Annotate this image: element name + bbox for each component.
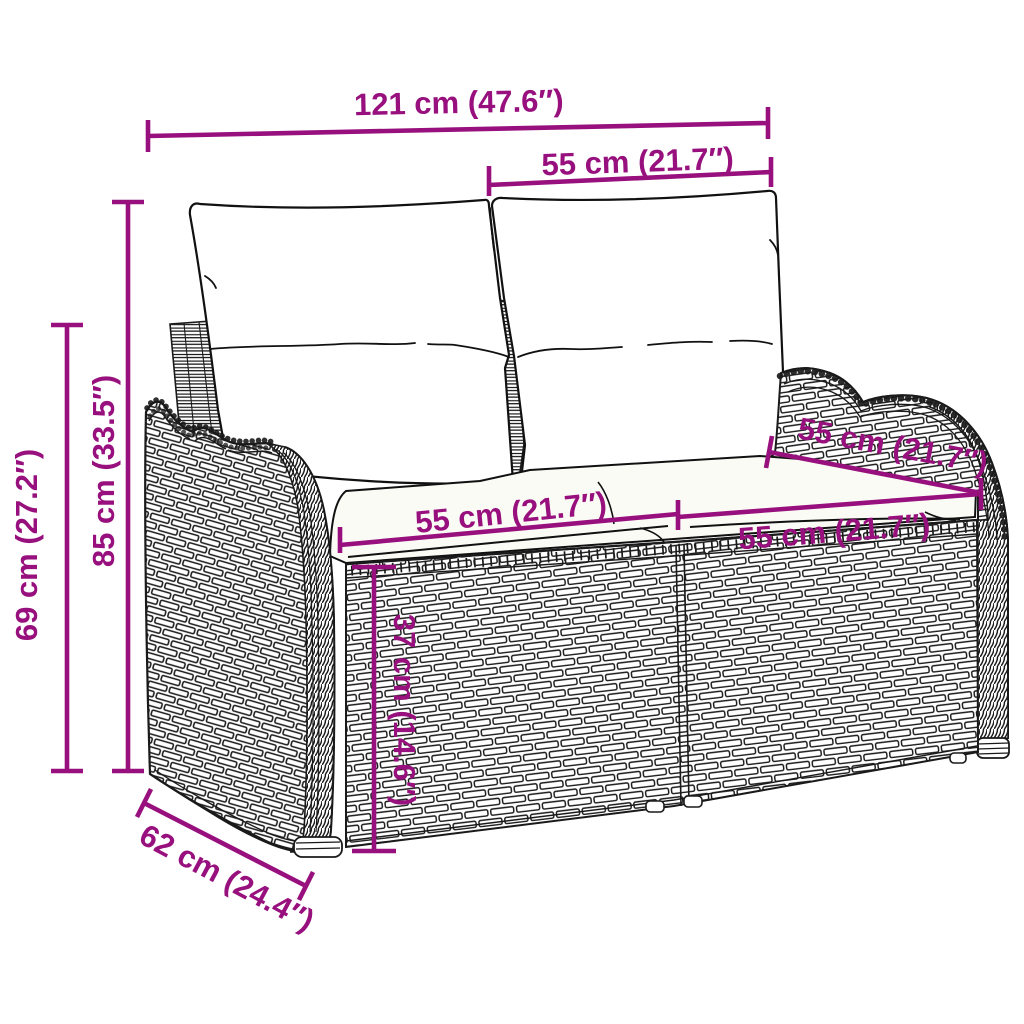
svg-text:69 cm (27.2″): 69 cm (27.2″)	[9, 449, 44, 641]
svg-text:121 cm (47.6″): 121 cm (47.6″)	[354, 83, 564, 122]
svg-text:37 cm (14.6″): 37 cm (14.6″)	[387, 614, 422, 806]
svg-text:85 cm (33.5″): 85 cm (33.5″)	[86, 375, 121, 567]
svg-text:55 cm (21.7″): 55 cm (21.7″)	[541, 141, 734, 183]
